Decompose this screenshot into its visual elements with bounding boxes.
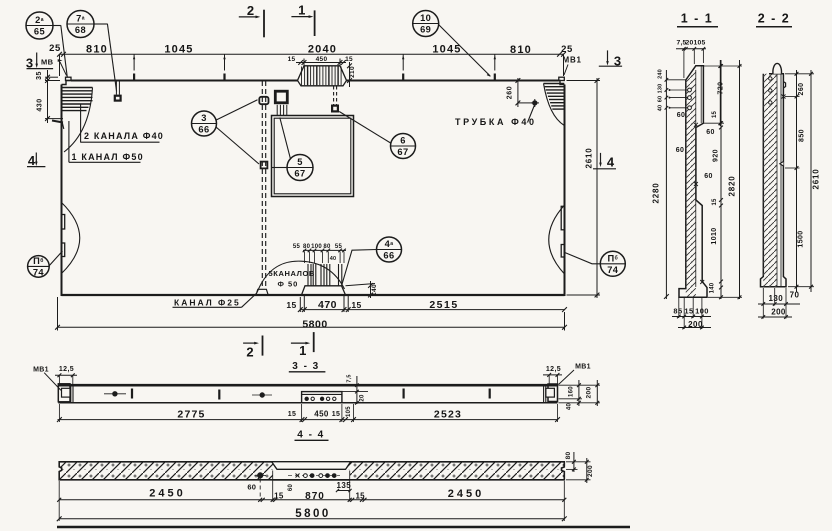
- svg-text:105: 105: [694, 40, 706, 47]
- svg-text:810: 810: [510, 44, 532, 56]
- svg-text:70: 70: [790, 291, 800, 300]
- svg-text:20: 20: [686, 40, 694, 47]
- svg-text:450: 450: [316, 56, 328, 63]
- svg-text:2280: 2280: [652, 183, 661, 204]
- svg-text:85: 85: [673, 307, 682, 316]
- svg-text:2450: 2450: [448, 488, 484, 500]
- svg-text:МВ1: МВ1: [563, 56, 582, 65]
- svg-text:200: 200: [771, 308, 786, 317]
- svg-text:2 - 2: 2 - 2: [758, 12, 791, 26]
- svg-text:105: 105: [346, 406, 352, 417]
- svg-text:2 КАНАЛА Ф40: 2 КАНАЛА Ф40: [84, 131, 164, 141]
- svg-text:100: 100: [311, 244, 322, 250]
- svg-text:60: 60: [288, 484, 294, 492]
- svg-text:80: 80: [323, 244, 331, 250]
- svg-text:850: 850: [799, 129, 806, 142]
- svg-text:1 КАНАЛ Ф50: 1 КАНАЛ Ф50: [72, 152, 144, 162]
- svg-text:55: 55: [335, 244, 343, 250]
- svg-text:2610: 2610: [812, 169, 821, 190]
- svg-text:130: 130: [658, 84, 664, 94]
- svg-text:15: 15: [288, 56, 296, 63]
- svg-text:20: 20: [360, 394, 366, 402]
- svg-text:920: 920: [713, 149, 720, 162]
- svg-text:430: 430: [37, 98, 44, 111]
- svg-text:65: 65: [34, 27, 45, 37]
- svg-text:450: 450: [314, 410, 329, 419]
- svg-text:10: 10: [420, 13, 431, 23]
- svg-text:12,5: 12,5: [59, 366, 74, 373]
- svg-text:69: 69: [420, 25, 431, 35]
- svg-text:1500: 1500: [798, 230, 805, 247]
- svg-text:15: 15: [355, 492, 365, 501]
- svg-text:40: 40: [658, 105, 664, 112]
- svg-text:260: 260: [507, 86, 514, 99]
- svg-text:74: 74: [33, 267, 45, 277]
- svg-text:140: 140: [371, 284, 378, 296]
- svg-text:2: 2: [246, 345, 253, 360]
- svg-text:25: 25: [561, 44, 573, 55]
- svg-text:1: 1: [299, 343, 306, 358]
- svg-text:1045: 1045: [432, 44, 461, 56]
- svg-text:720: 720: [718, 82, 725, 95]
- svg-text:25: 25: [49, 43, 61, 54]
- svg-text:55: 55: [293, 244, 301, 250]
- svg-text:210: 210: [349, 66, 356, 78]
- svg-text:1 - 1: 1 - 1: [681, 12, 714, 26]
- svg-text:2515: 2515: [429, 299, 458, 311]
- svg-text:3 - 3: 3 - 3: [292, 361, 320, 372]
- svg-text:15: 15: [712, 198, 718, 206]
- svg-text:5800: 5800: [302, 319, 327, 331]
- svg-text:80: 80: [303, 244, 311, 250]
- svg-text:68: 68: [75, 25, 86, 35]
- svg-text:130: 130: [769, 294, 784, 303]
- svg-text:35: 35: [36, 71, 43, 80]
- svg-text:2775: 2775: [177, 409, 205, 421]
- svg-text:4 - 4: 4 - 4: [297, 430, 325, 441]
- svg-text:810: 810: [86, 44, 108, 56]
- svg-text:5800: 5800: [295, 508, 331, 520]
- svg-text:3: 3: [201, 113, 207, 123]
- svg-text:240: 240: [658, 69, 664, 79]
- svg-text:2040: 2040: [308, 44, 337, 56]
- svg-text:67: 67: [397, 147, 408, 157]
- svg-text:2450: 2450: [149, 488, 185, 500]
- svg-text:КАНАЛ Ф25: КАНАЛ Ф25: [174, 298, 241, 308]
- svg-text:2: 2: [247, 3, 254, 18]
- svg-text:2610: 2610: [585, 148, 594, 169]
- svg-text:2523: 2523: [434, 409, 462, 421]
- svg-text:66: 66: [383, 251, 394, 261]
- svg-text:12,5: 12,5: [546, 366, 561, 373]
- svg-text:МВ: МВ: [41, 58, 54, 67]
- svg-text:7,5: 7,5: [347, 374, 353, 382]
- svg-text:66: 66: [198, 125, 209, 135]
- svg-text:200: 200: [586, 386, 593, 398]
- svg-text:160: 160: [569, 386, 575, 397]
- svg-text:5КАНАЛОВ: 5КАНАЛОВ: [269, 269, 315, 278]
- svg-text:1010: 1010: [711, 227, 718, 244]
- svg-text:60: 60: [658, 96, 664, 103]
- svg-text:15: 15: [345, 56, 353, 63]
- svg-text:60: 60: [247, 483, 256, 492]
- svg-text:4: 4: [28, 153, 36, 168]
- svg-text:67: 67: [294, 169, 305, 179]
- svg-text:15: 15: [332, 411, 341, 418]
- svg-text:60: 60: [706, 129, 714, 136]
- svg-text:15: 15: [351, 300, 361, 310]
- svg-text:200: 200: [587, 465, 594, 477]
- svg-text:40: 40: [567, 403, 573, 411]
- svg-text:60: 60: [704, 173, 712, 180]
- svg-text:МВ1: МВ1: [33, 367, 49, 374]
- svg-text:1045: 1045: [164, 44, 193, 56]
- svg-text:260: 260: [798, 83, 805, 96]
- svg-text:1: 1: [298, 3, 305, 18]
- svg-text:470: 470: [318, 299, 337, 311]
- svg-text:6: 6: [400, 136, 406, 146]
- svg-text:ТРУБКА Ф40: ТРУБКА Ф40: [455, 117, 537, 127]
- svg-text:15: 15: [274, 492, 284, 501]
- svg-text:15: 15: [288, 411, 297, 418]
- svg-text:15: 15: [684, 307, 693, 316]
- svg-text:80: 80: [565, 452, 572, 460]
- svg-text:2820: 2820: [728, 176, 737, 197]
- svg-text:60: 60: [676, 147, 684, 154]
- svg-text:МВ1: МВ1: [575, 364, 591, 371]
- svg-text:870: 870: [305, 491, 325, 502]
- svg-text:15: 15: [286, 300, 296, 310]
- svg-text:60: 60: [677, 112, 685, 119]
- svg-text:140: 140: [710, 282, 716, 293]
- svg-text:15: 15: [712, 111, 718, 119]
- svg-text:Ф 50: Ф 50: [278, 280, 299, 289]
- svg-text:40: 40: [330, 256, 337, 262]
- svg-text:5: 5: [297, 157, 303, 167]
- svg-text:74: 74: [607, 265, 619, 275]
- svg-text:4: 4: [607, 155, 615, 170]
